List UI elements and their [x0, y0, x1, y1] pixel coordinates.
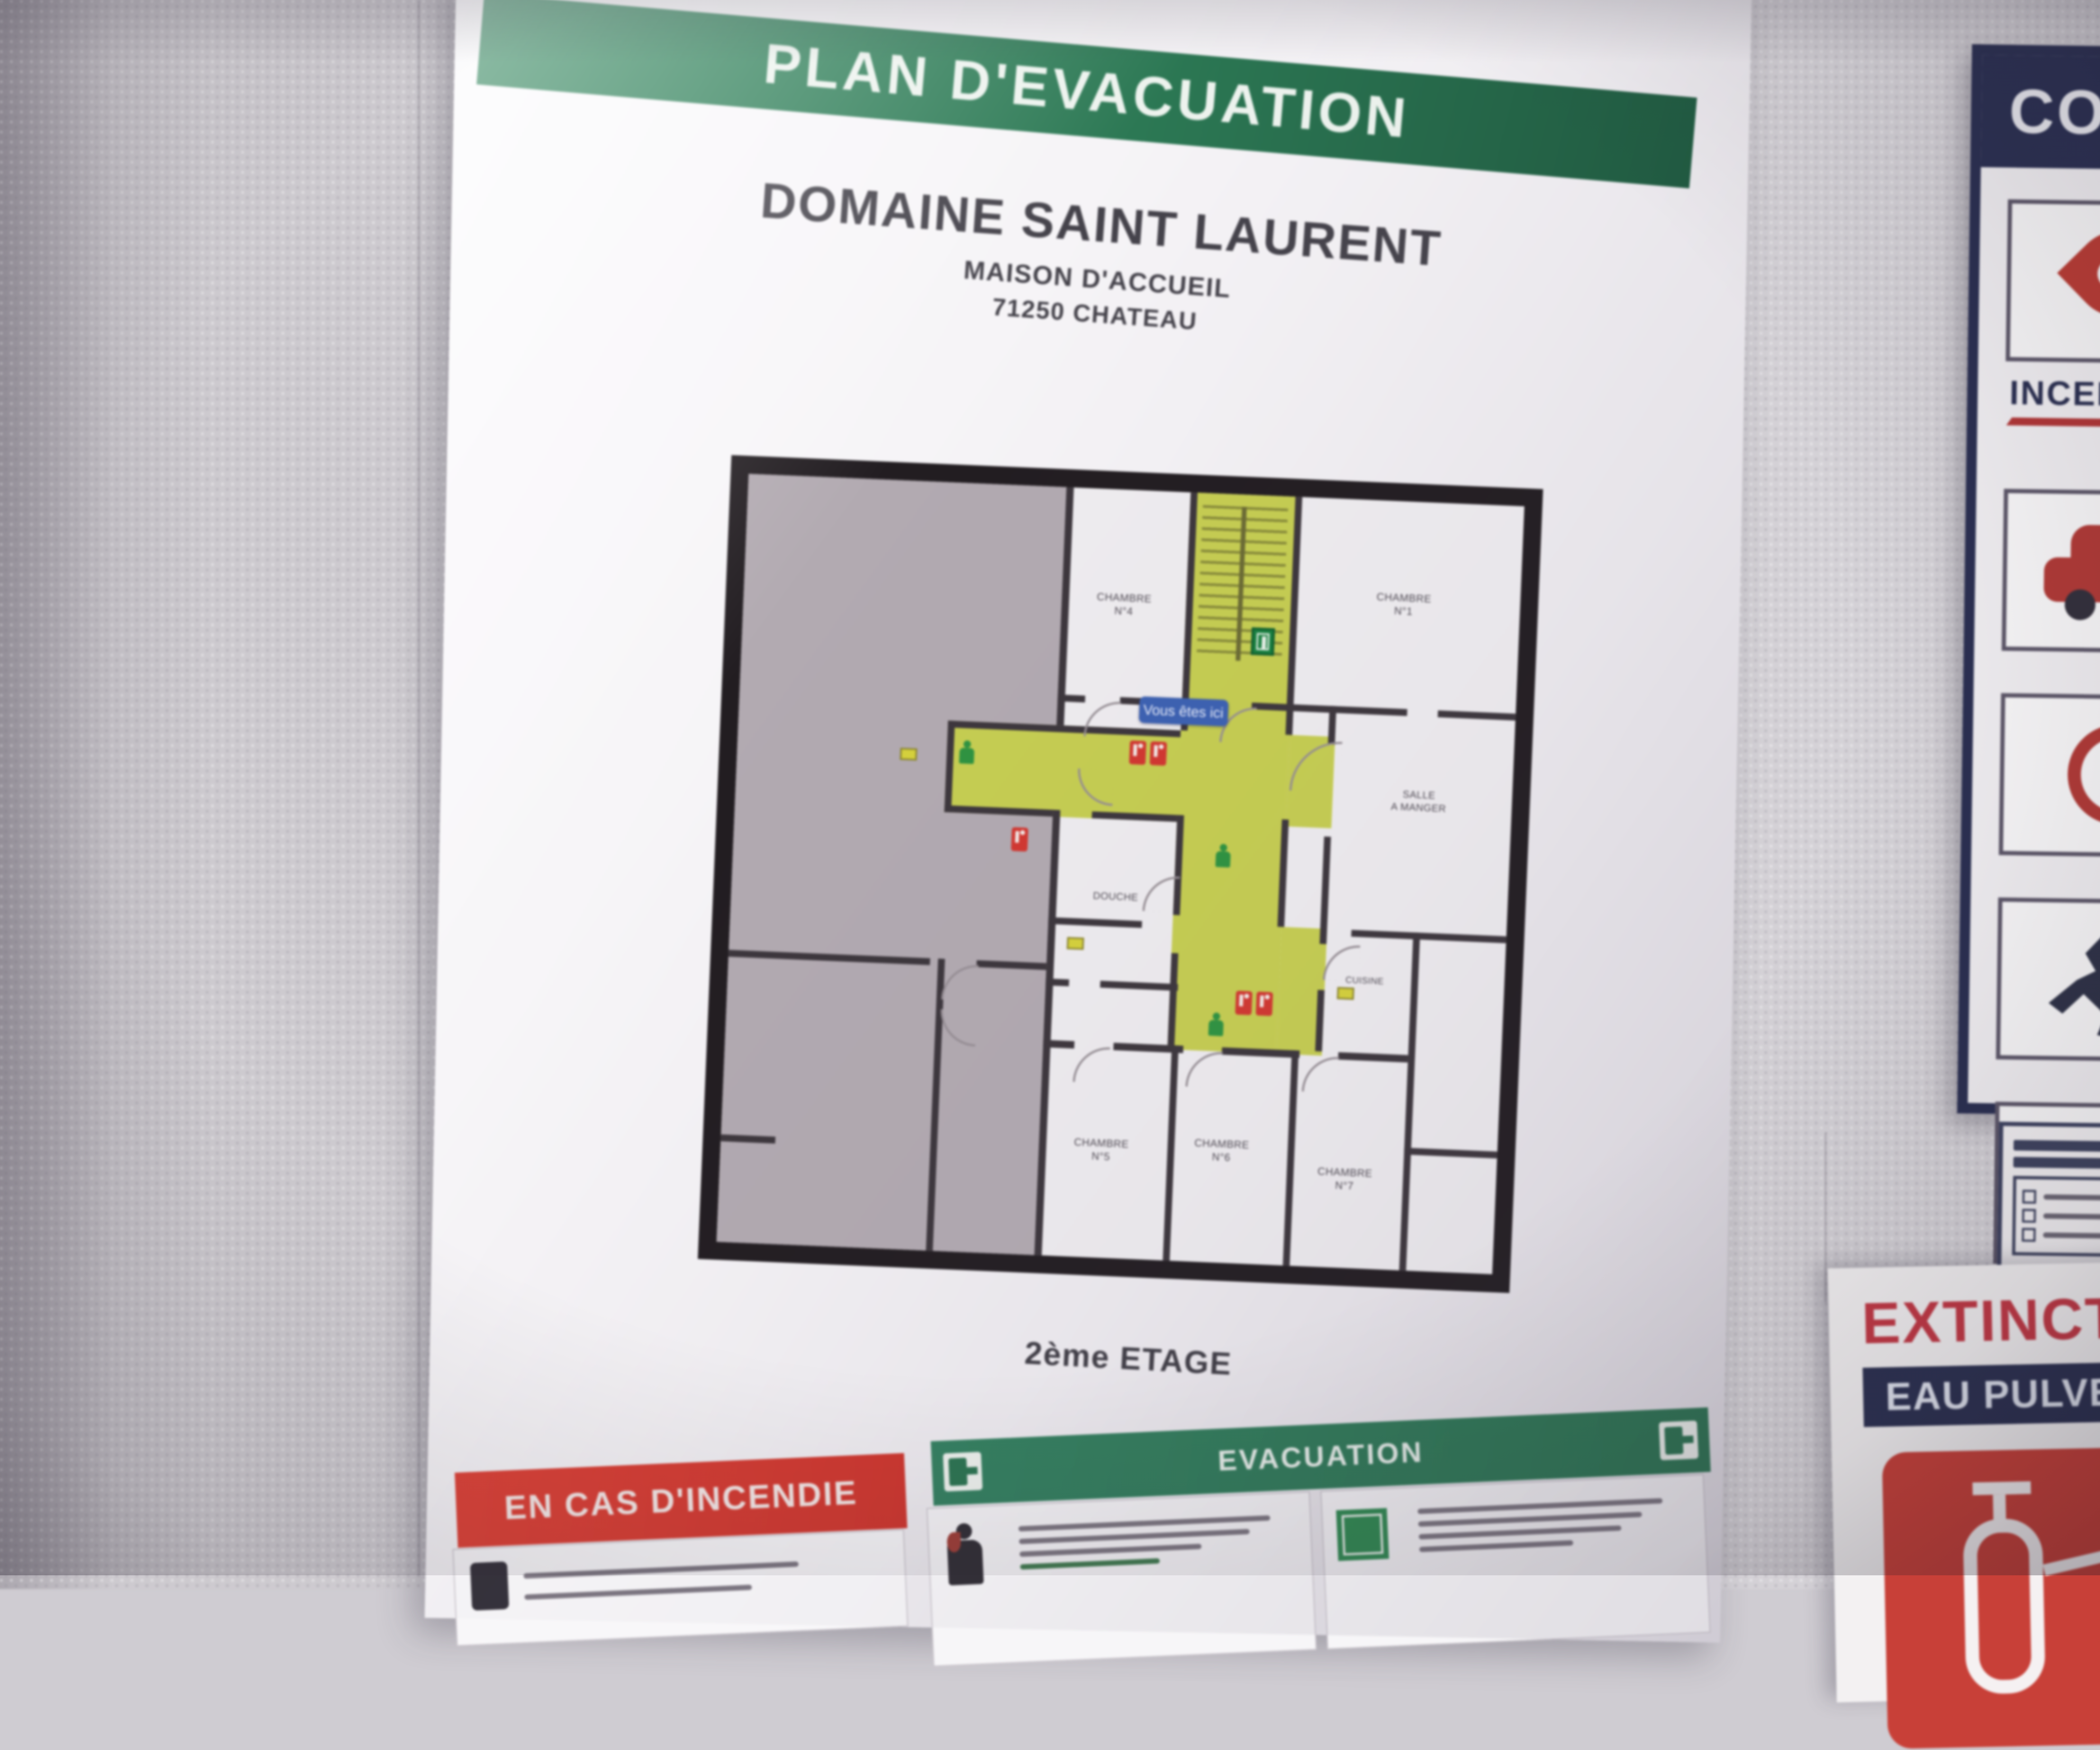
door-arc: [1083, 700, 1121, 738]
running-man-icon: [2048, 922, 2100, 1040]
room-label-line: CHAMBRE: [1194, 1138, 1249, 1151]
checkbox-icon: [2022, 1209, 2036, 1223]
notice-text-line: [2043, 1213, 2100, 1221]
wall-segment: [1048, 917, 1142, 928]
evacuation-direction-icon: [958, 741, 976, 764]
poster-title-banner: PLAN D'EVACUATION: [476, 0, 1697, 188]
notice-list-row: [2022, 1190, 2100, 1206]
instruction-text-line: [524, 1585, 752, 1600]
exit-sign-icon: [1251, 627, 1275, 656]
wall-segment: [1351, 930, 1507, 943]
extincteur-title: EXTINCTEUR: [1861, 1282, 2100, 1357]
instruction-text-line: [1419, 1526, 1622, 1540]
room-chambre-b3: CHAMBRE N°7: [1317, 1165, 1373, 1194]
room-label-line: SALLE: [1402, 789, 1435, 802]
extinguisher-icon: [1962, 1518, 2045, 1694]
room-label-line: A MANGER: [1391, 801, 1446, 815]
consignes-title: CONSIGNES: [1981, 55, 2100, 172]
room-label-line: N°6: [1212, 1151, 1231, 1163]
door-arc: [1073, 1046, 1110, 1084]
wall-segment: [1163, 1045, 1179, 1261]
exit-man-icon: [1659, 1421, 1698, 1460]
consignes-subtitle: INCENDIE: [2009, 373, 2100, 417]
room-chambre-top-right: CHAMBRE N°1: [1376, 591, 1432, 619]
fire-instructions-panel: [452, 1529, 908, 1646]
wall-segment: [1328, 706, 1336, 744]
person-icon: [942, 1522, 990, 1588]
wall-seam: [418, 0, 420, 1575]
room-douche: DOUCHE: [1093, 890, 1138, 904]
instruction-text-line: [523, 1562, 799, 1579]
checkbox-icon: [2022, 1190, 2036, 1204]
wall-segment: [1283, 1050, 1299, 1266]
runner-pictogram-box: [1996, 897, 2100, 1062]
door-arc: [1185, 1051, 1223, 1088]
wall-seam: [1825, 1133, 1826, 1302]
room-label-line: CHAMBRE: [1317, 1166, 1372, 1179]
evacuation-panel-left: [927, 1491, 1317, 1666]
wall-photo: { "poster": { "banner_title": "PLAN D'EV…: [0, 0, 2100, 1575]
instruction-text-line: [1419, 1540, 1573, 1553]
exit-man-icon: [943, 1452, 983, 1492]
room-chambre-b1: CHAMBRE N°5: [1073, 1136, 1129, 1165]
alarm-call-point-icon: [1337, 987, 1354, 1000]
phone-icon: [470, 1562, 509, 1611]
flame-icon: [2057, 214, 2100, 333]
floor-label: 2ème ETAGE: [948, 1330, 1309, 1386]
wall-segment: [1319, 836, 1331, 944]
room-chambre-top-left: CHAMBRE N°4: [1096, 591, 1152, 619]
site-title-block: DOMAINE SAINT LAURENT MAISON D'ACCUEIL 7…: [448, 150, 1750, 374]
extincteur-poster: EXTINCTEUR EAU PULVERISEE: [1827, 1260, 2100, 1702]
notice-list-row: [2022, 1228, 2100, 1244]
extinguisher-icon: [1129, 741, 1146, 765]
alarm-call-point-icon: [900, 748, 917, 761]
assembly-point-icon: [1336, 1508, 1389, 1561]
photo-scene: PLAN D'EVACUATION DOMAINE SAINT LAURENT …: [0, 0, 2100, 1575]
evacuation-panels: [927, 1474, 1711, 1667]
extinguisher-icon: [1235, 990, 1253, 1015]
room-label-line: N°5: [1091, 1150, 1110, 1162]
consignes-poster: CONSIGNES INCENDIE: [1957, 44, 2100, 1118]
notice-text-line: [2043, 1194, 2100, 1202]
wall-segment: [1404, 1148, 1497, 1158]
ring-icon: [2067, 724, 2100, 826]
you-are-here-marker: Vous êtes ici: [1138, 697, 1228, 727]
room-label-line: CHAMBRE: [1097, 591, 1152, 605]
instruction-text-line: [1019, 1544, 1201, 1557]
room-chambre-b2: CHAMBRE N°6: [1193, 1137, 1250, 1166]
instruction-text-line: [1418, 1498, 1663, 1514]
wall-segment: [1100, 981, 1178, 991]
extinguisher-hose-icon: [2043, 1544, 2100, 1576]
wall-segment: [1338, 1052, 1408, 1062]
vehicle-pictogram-box: [2002, 489, 2100, 654]
flame-pictogram-box: [2006, 199, 2100, 364]
room-label-line: N°7: [1335, 1180, 1354, 1192]
extinguisher-sign: [1882, 1446, 2100, 1749]
room-label-line: DOUCHE: [1093, 890, 1138, 904]
extinguisher-icon: [1011, 827, 1028, 852]
floor-plan: CHAMBRE N°4 CHAMBRE N°1 SALLE A MANGER D…: [698, 455, 1543, 1293]
evacuation-direction-icon: [1214, 843, 1232, 867]
evacuation-banner-label: EVACUATION: [1217, 1436, 1424, 1477]
room-label-line: CUISINE: [1345, 975, 1384, 986]
instruction-text-line: [1020, 1558, 1160, 1570]
evacuation-panel-right: [1320, 1474, 1710, 1649]
door-arc: [1302, 1056, 1339, 1093]
instruction-text-line: [1418, 1512, 1642, 1527]
ring-pictogram-box: [1999, 693, 2100, 858]
room-label-line: N°4: [1114, 605, 1133, 617]
notice-text-line: [2043, 1232, 2100, 1240]
red-swoosh: [2006, 418, 2100, 429]
notice-list: [2012, 1176, 2100, 1258]
extinguisher-icon: [1150, 742, 1167, 766]
room-label-line: CHAMBRE: [1377, 591, 1432, 605]
room-label-line: CHAMBRE: [1074, 1136, 1129, 1150]
notice-list-row: [2022, 1209, 2100, 1225]
notice-text-line: [2013, 1157, 2100, 1169]
extincteur-subtitle: EAU PULVERISEE: [1862, 1360, 2100, 1427]
room-salle-a-manger: SALLE A MANGER: [1391, 788, 1447, 816]
wall-segment: [1438, 710, 1516, 720]
room-label-line: N°1: [1394, 605, 1413, 617]
room-cuisine: CUISINE: [1345, 974, 1384, 987]
alarm-call-point-icon: [1067, 937, 1084, 950]
extinguisher-handle-icon: [1993, 1494, 2006, 1521]
door-arc: [1142, 875, 1180, 913]
instruction-text-line: [1019, 1529, 1250, 1544]
evacuation-direction-icon: [1207, 1012, 1225, 1036]
checkbox-icon: [2022, 1228, 2035, 1242]
wall-segment: [1399, 933, 1420, 1271]
notice-text-line: [2014, 1140, 2100, 1152]
extinguisher-handle-icon: [1972, 1481, 2031, 1495]
wheel-icon: [2065, 589, 2096, 620]
extinguisher-icon: [1256, 991, 1273, 1016]
evacuation-plan-poster: PLAN D'EVACUATION DOMAINE SAINT LAURENT …: [424, 0, 1751, 1643]
